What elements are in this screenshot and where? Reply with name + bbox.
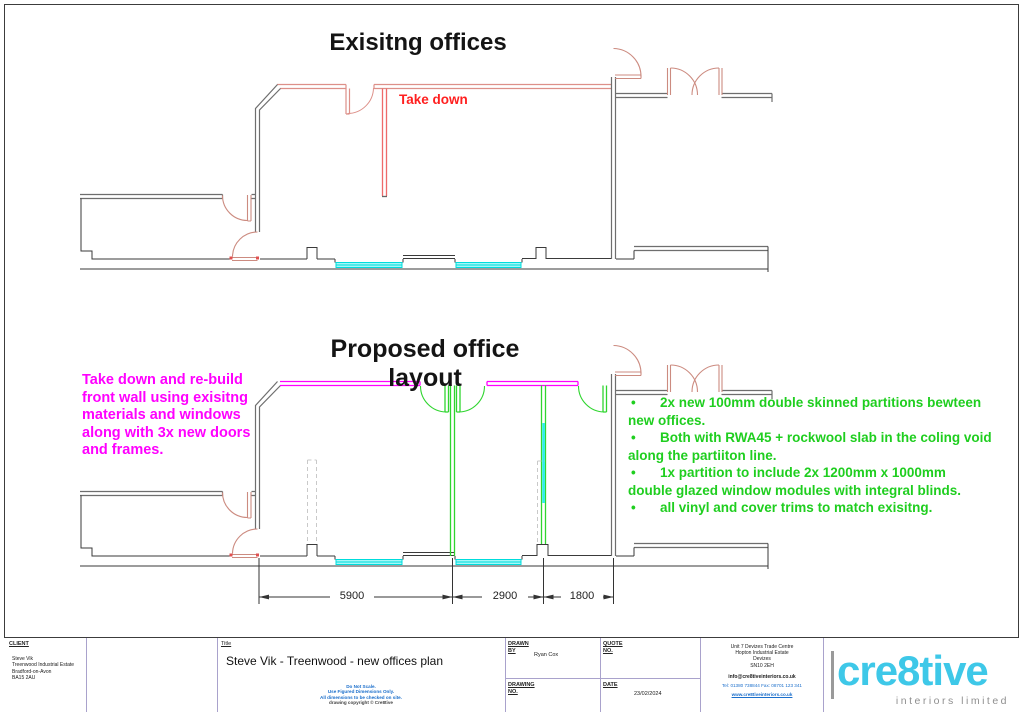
title-label: Title [221, 641, 231, 648]
magenta-note: Take down and re-build front wall using … [82, 372, 277, 460]
company-email: info@cre8tiveinteriors.co.uk [704, 674, 820, 680]
bullet-icon: • [628, 394, 660, 412]
date-label: DATE [603, 682, 618, 689]
magenta-note-line: Take down and re-build [82, 372, 277, 390]
bullet-icon: • [628, 499, 660, 517]
magenta-note-line: and frames. [82, 442, 277, 460]
title-block: CLIENT Steve Vik Treenwood Industrial Es… [4, 637, 1019, 712]
take-down-label: Take down [399, 92, 468, 107]
date-value: 23/02/2024 [634, 691, 662, 697]
existing-boundary [80, 199, 768, 273]
logo-bar [831, 651, 834, 699]
drawn-by-value: Ryan Cox [534, 652, 558, 658]
company-address: Unit 7 Devizes Trade Centre Hopton Indus… [704, 644, 820, 698]
disclaimer: Do Not Scale. Use Figured Dimensions Onl… [217, 684, 505, 706]
green-notes: •2x new 100mm double skinned partitions … [628, 394, 1012, 517]
existing-red-partition [382, 89, 387, 197]
dimension-1800: 1800 [560, 590, 604, 602]
door-stop-mark [230, 554, 233, 557]
drawing-sheet: { "drawing": { "existing_title": "Exisit… [0, 0, 1024, 717]
door-stop-mark [256, 257, 259, 260]
divider [86, 638, 87, 712]
existing-plan [80, 49, 772, 273]
divider [600, 638, 601, 712]
existing-windows [336, 263, 521, 268]
divider [700, 638, 701, 712]
floor-plans-canvas [0, 0, 1024, 634]
green-note-item: •Both with RWA45 + rockwool slab in the … [628, 429, 1012, 464]
proposed-green-partitions [421, 386, 607, 557]
quote-no-label: QUOTE NO. [603, 641, 623, 654]
magenta-note-line: materials and windows [82, 407, 277, 425]
door-stop-mark [230, 257, 233, 260]
dimension-5900: 5900 [330, 590, 374, 602]
glazed-partition-glass [542, 423, 545, 503]
green-note-item: •all vinyl and cover trims to match exis… [628, 499, 1012, 517]
drawing-no-label: DRAWING NO. [508, 682, 535, 695]
company-website: www.cre8tiveinteriors.co.uk [704, 692, 820, 698]
magenta-note-line: front wall using exisitng [82, 390, 277, 408]
green-note-item: •1x partition to include 2x 1200mm x 100… [628, 464, 1012, 499]
divider [823, 638, 824, 712]
drawing-title: Steve Vik - Treenwood - new offices plan [226, 654, 443, 668]
drawn-by-label: DRAWN BY [508, 641, 529, 654]
bullet-icon: • [628, 464, 660, 482]
proposed-dashed-lines [308, 460, 546, 544]
dimension-2900: 2900 [483, 590, 527, 602]
client-label: CLIENT [9, 641, 29, 648]
existing-plan-title: Exisitng offices [318, 29, 518, 57]
magenta-note-line: along with 3x new doors [82, 425, 277, 443]
bullet-icon: • [628, 429, 660, 447]
logo-text: cre8tive [837, 650, 988, 692]
proposed-windows [336, 560, 521, 565]
divider [505, 638, 506, 712]
divider [505, 678, 700, 679]
logo-subtext: interiors limited [896, 695, 1009, 707]
company-telfax: Tel: 01380 738844 Fax: 08701 123 341 [704, 683, 820, 689]
door-stop-mark [256, 554, 259, 557]
existing-coral-doors [222, 49, 722, 261]
client-address: Steve Vik Treenwood Industrial Estate Br… [12, 656, 74, 682]
proposed-plan-title: Proposed office layout [302, 335, 548, 393]
green-note-item: •2x new 100mm double skinned partitions … [628, 394, 1012, 429]
